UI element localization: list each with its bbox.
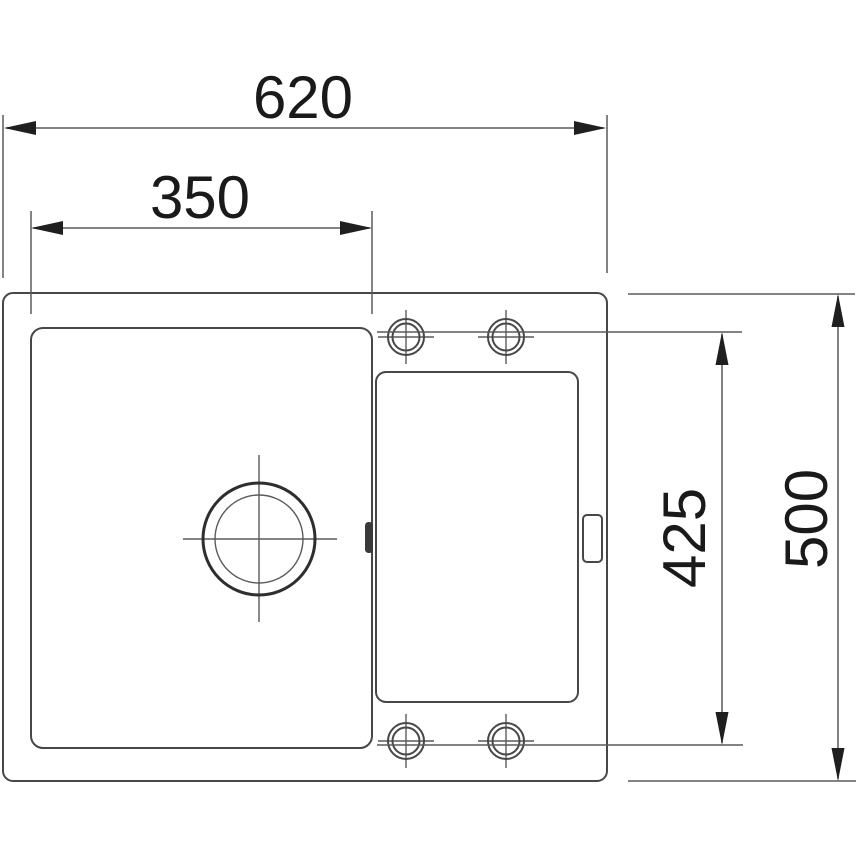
tap-hole-bottom-left — [378, 714, 434, 768]
dimension-inner-height: 425 — [377, 332, 743, 745]
arrowhead-up — [716, 332, 729, 365]
dimension-bowl-width: 350 — [31, 164, 372, 314]
drain-hole — [183, 455, 337, 622]
arrowhead-down — [832, 748, 845, 781]
sink-outer-rim — [3, 293, 607, 781]
dimension-label-500: 500 — [773, 469, 840, 569]
sink-dimension-drawing: 620 350 425 500 — [0, 0, 860, 860]
tap-hole-top-left — [378, 310, 434, 364]
tap-hole-bottom-right — [478, 714, 534, 768]
arrowhead-left — [31, 221, 63, 235]
rim-notch — [583, 515, 602, 562]
dimension-label-350: 350 — [150, 164, 250, 231]
technical-drawing-canvas: 620 350 425 500 — [0, 0, 860, 860]
overflow-marker — [365, 522, 373, 553]
arrowhead-left — [4, 121, 36, 135]
sink-outline-group — [3, 293, 607, 781]
dimension-label-425: 425 — [651, 488, 718, 588]
arrowhead-right — [574, 121, 606, 135]
dimension-overall-width: 620 — [3, 64, 607, 278]
arrowhead-up — [832, 294, 845, 327]
arrowhead-down — [716, 712, 729, 745]
arrowhead-right — [340, 221, 372, 235]
tap-hole-top-right — [478, 310, 534, 364]
drainboard-outline — [376, 372, 578, 702]
main-bowl-outline — [31, 328, 372, 748]
dimension-label-620: 620 — [253, 64, 353, 131]
